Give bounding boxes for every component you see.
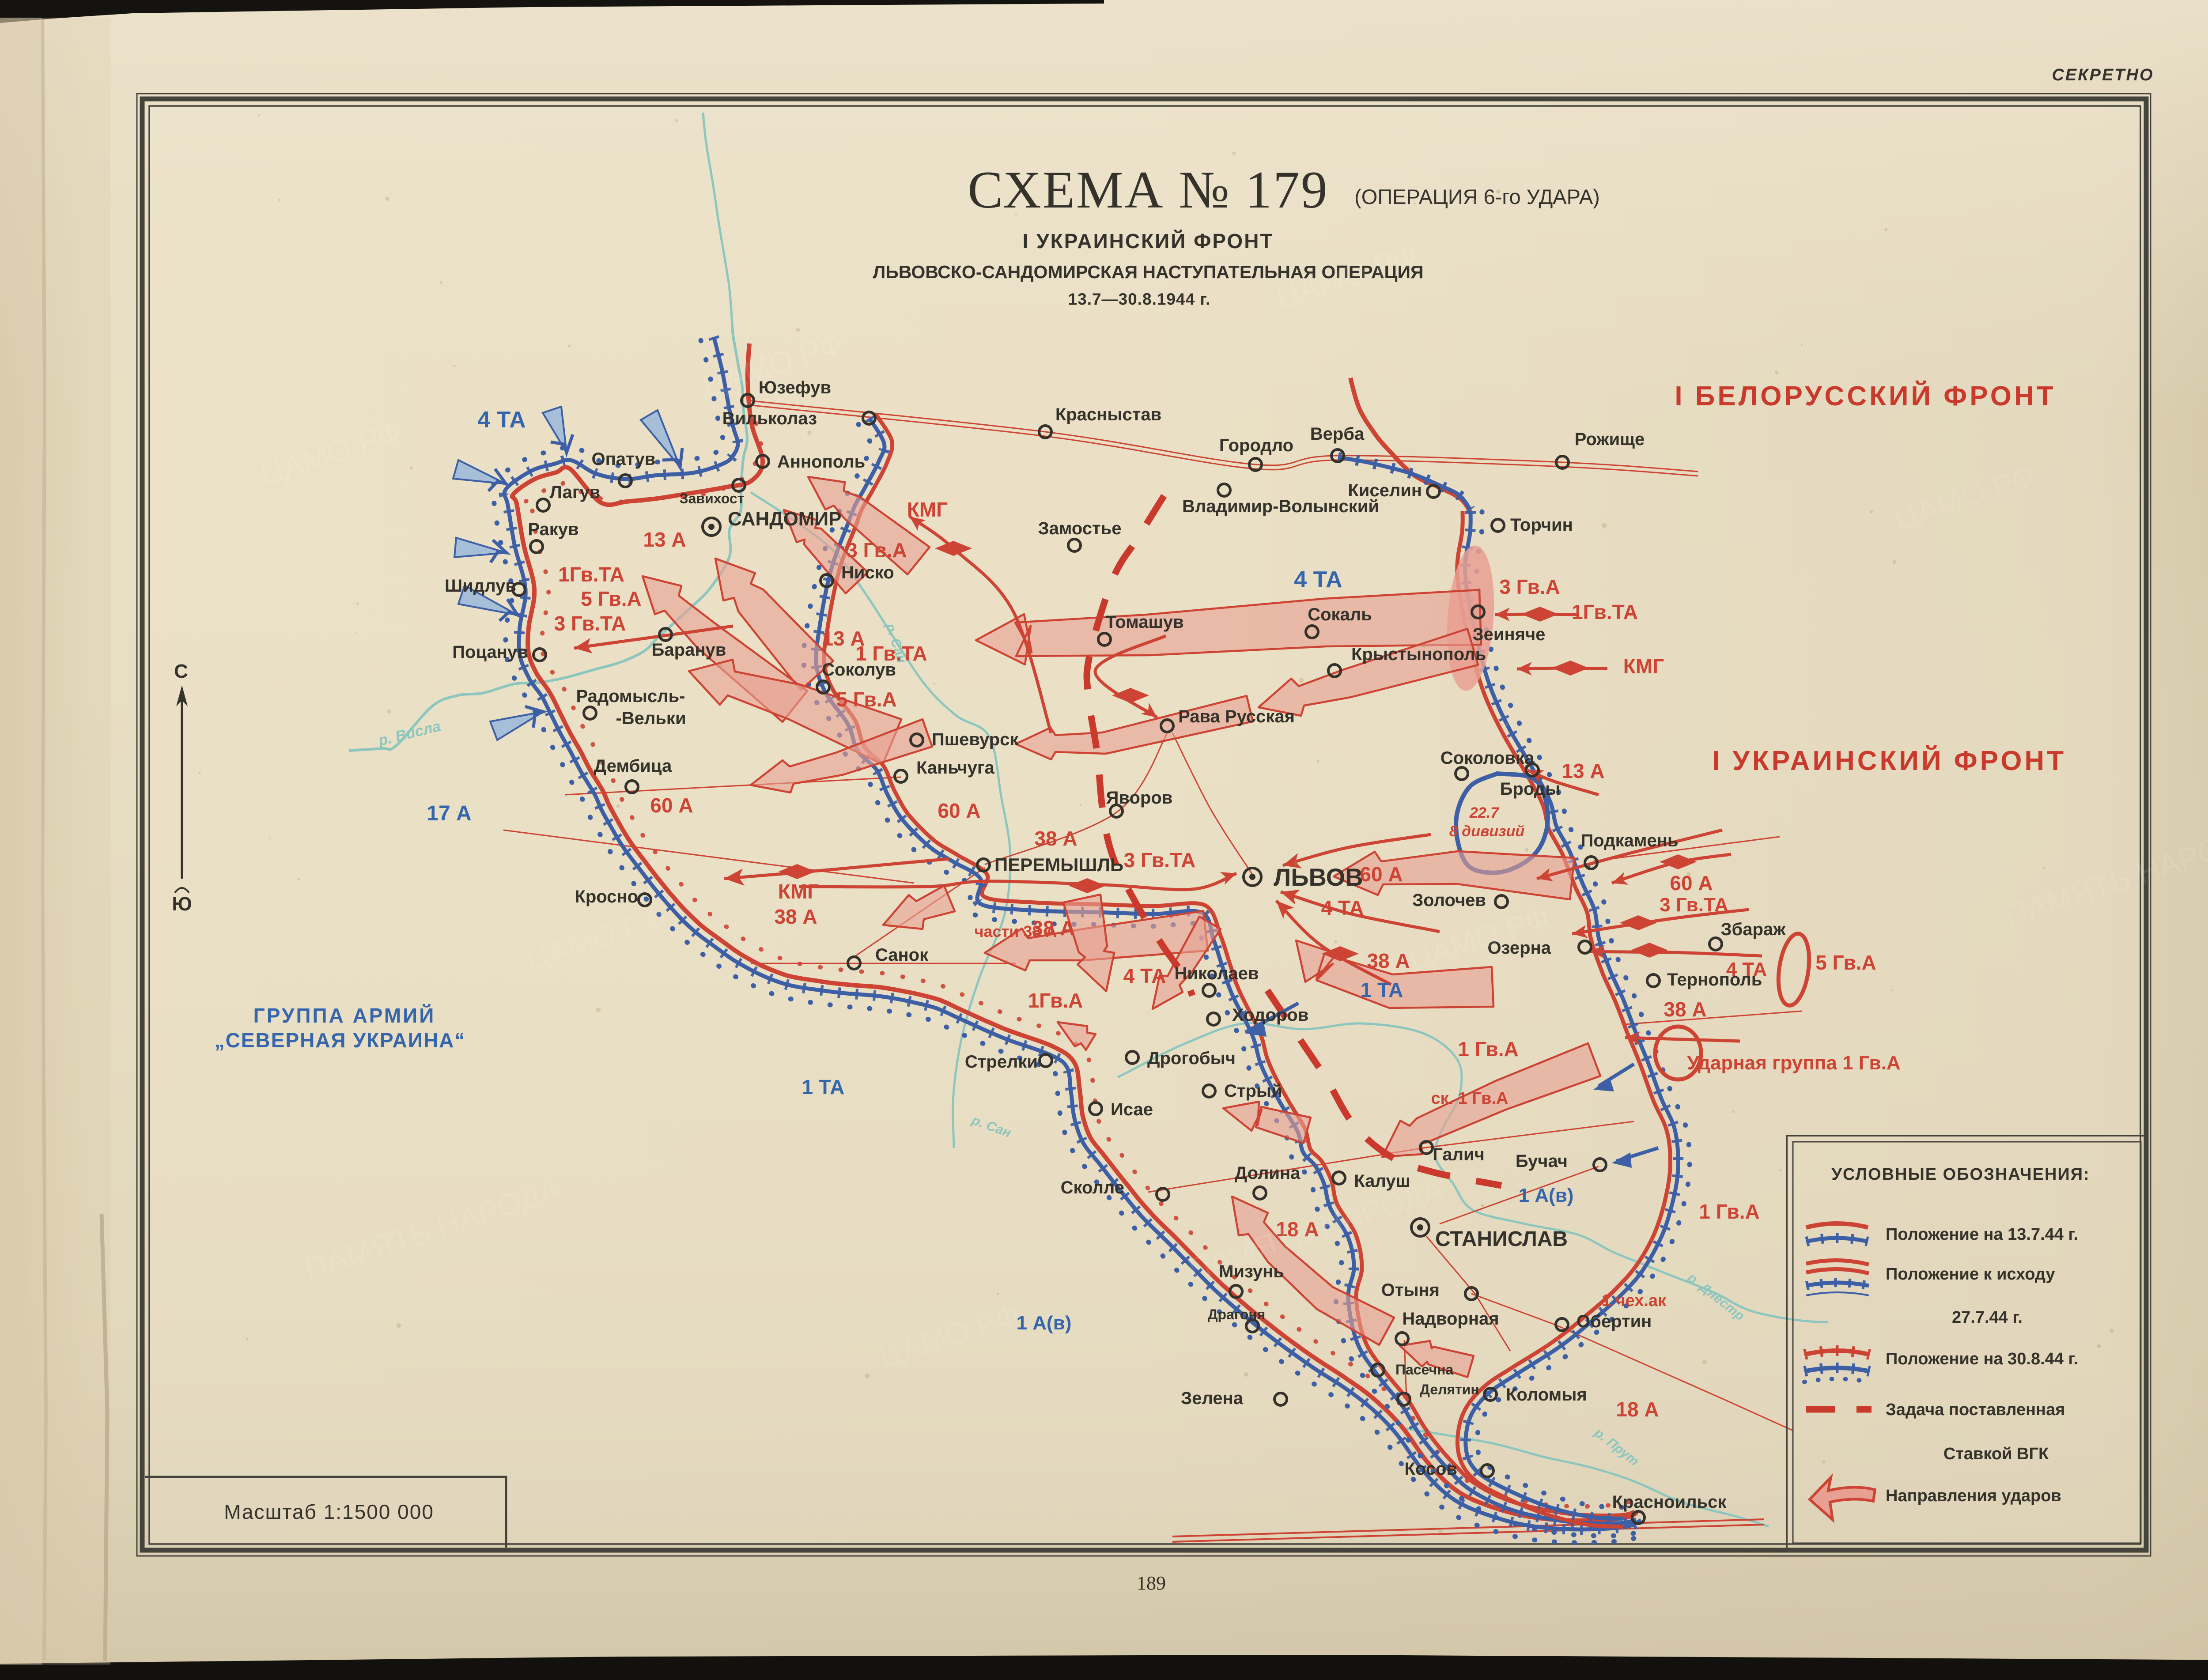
svg-text:СХЕМА № 179: СХЕМА № 179: [968, 160, 1329, 219]
svg-text:1Гв.ТА: 1Гв.ТА: [1572, 600, 1638, 623]
svg-text:38 А: 38 А: [1367, 949, 1410, 972]
svg-text:Стрый: Стрый: [1224, 1081, 1282, 1101]
svg-text:Городло: Городло: [1219, 436, 1293, 455]
svg-text:Пасечна: Пасечна: [1395, 1362, 1454, 1378]
svg-text:ск. 1 Гв.А: ск. 1 Гв.А: [1431, 1089, 1509, 1108]
svg-text:І УКРАИНСКИЙ ФРОНТ: І УКРАИНСКИЙ ФРОНТ: [1712, 745, 2066, 776]
svg-text:Радомысль-: Радомысль-: [576, 687, 685, 706]
svg-text:Надворная: Надворная: [1402, 1309, 1499, 1329]
svg-text:60 А: 60 А: [650, 794, 693, 817]
svg-text:Подкамень: Подкамень: [1581, 831, 1679, 850]
svg-text:13.7—30.8.1944 г.: 13.7—30.8.1944 г.: [1068, 290, 1211, 308]
svg-text:Задача поставленная: Задача поставленная: [1886, 1401, 2065, 1419]
svg-text:1Гв.ТА: 1Гв.ТА: [558, 563, 624, 586]
svg-text:КМГ: КМГ: [907, 498, 948, 521]
svg-text:Масштаб 1:1500 000: Масштаб 1:1500 000: [224, 1500, 434, 1523]
svg-text:Шидлув: Шидлув: [445, 576, 516, 596]
svg-text:13 А: 13 А: [1561, 759, 1604, 782]
svg-text:1 Гв.ТА: 1 Гв.ТА: [855, 642, 927, 665]
svg-text:Красныстав: Красныстав: [1055, 405, 1161, 424]
svg-text:Обертин: Обертин: [1577, 1312, 1652, 1331]
svg-text:Броды: Броды: [1500, 779, 1561, 799]
svg-text:Галич: Галич: [1433, 1145, 1485, 1164]
svg-text:УСЛОВНЫЕ ОБОЗНАЧЕНИЯ:: УСЛОВНЫЕ ОБОЗНАЧЕНИЯ:: [1831, 1165, 2090, 1184]
svg-text:1 ТА: 1 ТА: [1361, 978, 1403, 1001]
svg-text:Пшевурск: Пшевурск: [932, 730, 1019, 749]
svg-text:Делятин: Делятин: [1420, 1382, 1479, 1397]
svg-text:Кросно: Кросно: [575, 887, 638, 906]
svg-text:Коломыя: Коломыя: [1506, 1385, 1587, 1404]
svg-text:3 Гв.А: 3 Гв.А: [846, 539, 907, 562]
svg-text:8 дивизий: 8 дивизий: [1449, 823, 1525, 840]
svg-text:189: 189: [1137, 1572, 1166, 1594]
svg-text:Отыня: Отыня: [1381, 1280, 1440, 1300]
svg-text:Баранув: Баранув: [652, 640, 726, 660]
svg-text:І БЕЛОРУССКИЙ ФРОНТ: І БЕЛОРУССКИЙ ФРОНТ: [1675, 381, 2056, 412]
svg-text:17 А: 17 А: [427, 802, 471, 825]
svg-text:4 ТА: 4 ТА: [1726, 959, 1767, 980]
svg-text:5 Гв.А: 5 Гв.А: [581, 587, 642, 610]
svg-text:Положение на 13.7.44 г.: Положение на 13.7.44 г.: [1886, 1225, 2078, 1244]
svg-text:4 ТА: 4 ТА: [477, 407, 526, 433]
svg-text:4 ТА: 4 ТА: [1294, 567, 1342, 593]
svg-text:Направления ударов: Направления ударов: [1886, 1487, 2061, 1505]
svg-text:КМГ: КМГ: [778, 880, 819, 903]
svg-text:22.7: 22.7: [1469, 804, 1500, 821]
svg-text:СЕКРЕТНО: СЕКРЕТНО: [2052, 66, 2154, 84]
svg-text:Яворов: Яворов: [1106, 788, 1173, 808]
svg-text:Лагув: Лагув: [550, 483, 601, 502]
svg-text:Ю: Ю: [172, 893, 192, 915]
svg-text:Рава Русская: Рава Русская: [1178, 707, 1295, 726]
svg-text:38 А: 38 А: [1664, 998, 1706, 1021]
svg-text:Положение к исходу: Положение к исходу: [1886, 1265, 2055, 1284]
svg-text:Долина: Долина: [1235, 1163, 1301, 1183]
svg-text:Поцанув: Поцанув: [452, 642, 528, 662]
svg-text:Зелена: Зелена: [1181, 1389, 1244, 1408]
svg-text:КМГ: КМГ: [1623, 655, 1664, 678]
svg-text:Владимир-Волынский: Владимир-Волынский: [1182, 497, 1379, 516]
svg-text:І УКРАИНСКИЙ ФРОНТ: І УКРАИНСКИЙ ФРОНТ: [1022, 230, 1274, 253]
svg-text:ПЕРЕМЫШЛЬ: ПЕРЕМЫШЛЬ: [994, 854, 1123, 875]
svg-text:Косов: Косов: [1404, 1459, 1457, 1479]
svg-text:Николаев: Николаев: [1175, 964, 1259, 983]
svg-text:Сколле: Сколле: [1061, 1178, 1124, 1197]
svg-text:1 А(в): 1 А(в): [1017, 1312, 1072, 1334]
svg-text:Томашув: Томашув: [1105, 612, 1183, 632]
svg-text:части 38 А: части 38 А: [975, 922, 1057, 940]
svg-text:Рожище: Рожище: [1575, 430, 1645, 449]
svg-text:Санок: Санок: [875, 945, 929, 965]
svg-text:Збараж: Збараж: [1720, 920, 1786, 939]
svg-text:Завихост: Завихост: [680, 491, 745, 506]
svg-text:Дрогобыч: Дрогобыч: [1147, 1049, 1236, 1068]
svg-text:Верба: Верба: [1310, 424, 1365, 444]
svg-text:СТАНИСЛАВ: СТАНИСЛАВ: [1435, 1227, 1568, 1251]
svg-text:13 А: 13 А: [643, 528, 686, 551]
svg-text:Вильколаз: Вильколаз: [722, 409, 817, 428]
svg-text:1 А(в): 1 А(в): [1519, 1185, 1574, 1206]
svg-text:САНДОМИР: САНДОМИР: [728, 508, 841, 530]
svg-text:1 ТА: 1 ТА: [802, 1076, 845, 1099]
svg-text:Зеиняче: Зеиняче: [1473, 625, 1546, 644]
svg-text:Ставкой ВГК: Ставкой ВГК: [1943, 1445, 2049, 1463]
svg-text:Ниско: Ниско: [841, 563, 894, 582]
svg-text:4 ТА: 4 ТА: [1123, 964, 1166, 987]
svg-text:60 А: 60 А: [1670, 872, 1713, 895]
svg-text:Ударная группа 1 Гв.А: Ударная группа 1 Гв.А: [1687, 1052, 1900, 1074]
svg-text:Крыстынополь: Крыстынополь: [1351, 645, 1486, 664]
svg-text:Положение на 30.8.44 г.: Положение на 30.8.44 г.: [1886, 1350, 2078, 1368]
svg-text:3 Гв.ТА: 3 Гв.ТА: [1660, 894, 1728, 916]
svg-text:Аннополь: Аннополь: [777, 452, 865, 472]
svg-text:3 Гв.ТА: 3 Гв.ТА: [1124, 849, 1196, 872]
svg-text:Сокаль: Сокаль: [1308, 605, 1372, 624]
svg-text:Золочев: Золочев: [1412, 891, 1486, 910]
svg-text:Стрелки: Стрелки: [965, 1052, 1038, 1072]
svg-text:Драгоня: Драгоня: [1208, 1306, 1266, 1322]
svg-text:С: С: [174, 661, 188, 682]
svg-text:ГРУППА АРМИЙ: ГРУППА АРМИЙ: [253, 1004, 436, 1027]
svg-text:Дембица: Дембица: [594, 756, 672, 776]
svg-text:Соколовка: Соколовка: [1440, 748, 1535, 768]
svg-text:Опатув: Опатув: [592, 449, 656, 469]
svg-text:1 чех.ак: 1 чех.ак: [1602, 1291, 1667, 1310]
svg-text:1 Гв.А: 1 Гв.А: [1458, 1038, 1519, 1061]
svg-text:3 Гв.А: 3 Гв.А: [1499, 575, 1560, 598]
svg-text:38 А: 38 А: [1034, 827, 1077, 850]
svg-text:1Гв.А: 1Гв.А: [1028, 989, 1083, 1012]
svg-text:Бучач: Бучач: [1516, 1151, 1568, 1171]
svg-text:5 Гв.А: 5 Гв.А: [836, 688, 897, 711]
svg-text:27.7.44 г.: 27.7.44 г.: [1952, 1308, 2023, 1327]
svg-text:38 А: 38 А: [774, 905, 817, 928]
svg-text:60 А: 60 А: [938, 799, 980, 822]
svg-text:„СЕВЕРНАЯ УКРАИНА“: „СЕВЕРНАЯ УКРАИНА“: [215, 1029, 466, 1052]
svg-text:3 Гв.ТА: 3 Гв.ТА: [554, 612, 626, 635]
svg-text:Ходоров: Ходоров: [1232, 1005, 1308, 1025]
svg-text:4 ТА: 4 ТА: [1321, 896, 1364, 919]
svg-text:(ОПЕРАЦИЯ 6-го УДАРА): (ОПЕРАЦИЯ 6-го УДАРА): [1354, 185, 1600, 208]
svg-text:ЛЬВОВ: ЛЬВОВ: [1274, 863, 1363, 891]
svg-text:Ракув: Ракув: [528, 520, 578, 539]
svg-text:-Вельки: -Вельки: [616, 709, 686, 728]
svg-text:Красноильск: Красноильск: [1612, 1492, 1727, 1512]
svg-text:Исае: Исае: [1111, 1100, 1153, 1119]
svg-text:60 А: 60 А: [1360, 863, 1403, 886]
svg-text:Замостье: Замостье: [1038, 519, 1122, 538]
svg-text:Торчин: Торчин: [1510, 515, 1573, 535]
svg-text:1 Гв.А: 1 Гв.А: [1699, 1200, 1760, 1223]
svg-text:18 А: 18 А: [1616, 1398, 1659, 1421]
svg-text:5 Гв.А: 5 Гв.А: [1815, 951, 1876, 974]
svg-text:Каньчуга: Каньчуга: [916, 758, 995, 778]
